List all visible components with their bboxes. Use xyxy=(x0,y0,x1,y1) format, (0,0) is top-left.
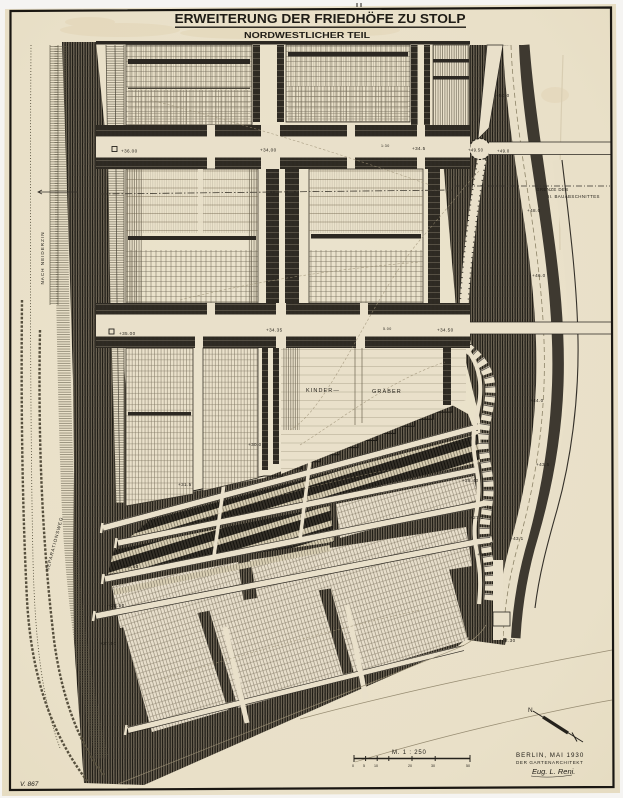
svg-text:N.: N. xyxy=(528,707,535,714)
svg-text:M. 1 : 250: M. 1 : 250 xyxy=(392,750,427,756)
svg-text:+48.0: +48.0 xyxy=(527,208,541,213)
svg-text:DER GARTENARCHITEKT: DER GARTENARCHITEKT xyxy=(516,760,583,765)
svg-text:+44.0: +44.0 xyxy=(530,398,544,403)
svg-text:+35.00: +35.00 xyxy=(119,331,136,336)
svg-text:NORDWESTLICHER TEIL: NORDWESTLICHER TEIL xyxy=(244,31,370,40)
svg-text:+30.0: +30.0 xyxy=(248,442,262,447)
svg-text:+29.50: +29.50 xyxy=(122,564,139,569)
svg-text:NACH NEIDERZIN: NACH NEIDERZIN xyxy=(40,231,45,284)
svg-text:KINDER—: KINDER— xyxy=(306,388,340,394)
svg-text:0: 0 xyxy=(352,764,354,768)
svg-text:+29.50: +29.50 xyxy=(452,440,469,445)
svg-text:+27.3: +27.3 xyxy=(470,515,484,520)
svg-text:5: 5 xyxy=(363,764,365,768)
svg-text:+30.5: +30.5 xyxy=(140,524,154,529)
svg-text:+34.5: +34.5 xyxy=(412,146,426,151)
svg-text:+43.1: +43.1 xyxy=(510,536,524,541)
svg-text:+49.0: +49.0 xyxy=(497,149,510,154)
svg-text:+28.40: +28.40 xyxy=(462,478,479,483)
svg-text:+28.50: +28.50 xyxy=(108,603,125,608)
svg-text:+34.35: +34.35 xyxy=(266,328,283,333)
svg-text:+27.50: +27.50 xyxy=(100,641,117,646)
svg-text:+46.0: +46.0 xyxy=(532,273,546,278)
svg-text:10: 10 xyxy=(374,764,378,768)
svg-text:1:30: 1:30 xyxy=(381,144,390,148)
svg-text:+26.4: +26.4 xyxy=(477,552,491,557)
svg-text:+34.50: +34.50 xyxy=(437,328,454,333)
svg-text:+31.5: +31.5 xyxy=(178,482,192,487)
svg-text:50: 50 xyxy=(466,764,470,768)
svg-text:+49.50: +49.50 xyxy=(468,148,484,153)
svg-text:+36.00: +36.00 xyxy=(121,149,138,154)
svg-text:ERWEITERUNG DER FRIEDHÖFE ZU S: ERWEITERUNG DER FRIEDHÖFE ZU STOLP xyxy=(175,11,466,26)
svg-text:GRENZE DES: GRENZE DES xyxy=(536,187,569,192)
svg-text:+50.0: +50.0 xyxy=(496,93,510,98)
svg-text:V. 867: V. 867 xyxy=(20,781,39,788)
svg-text:+34,00: +34,00 xyxy=(260,148,277,153)
svg-text:+43.5: +43.5 xyxy=(536,462,550,467)
svg-text:II. BAUABSCHNITTES: II. BAUABSCHNITTES xyxy=(548,194,600,199)
svg-text:20: 20 xyxy=(408,764,412,768)
svg-text:5.00: 5.00 xyxy=(383,327,392,331)
svg-text:+42.30: +42.30 xyxy=(499,638,516,643)
svg-text:30: 30 xyxy=(431,764,435,768)
svg-text:BERLIN, MAI 1930: BERLIN, MAI 1930 xyxy=(516,752,584,759)
svg-text:Eug. L. Reni.: Eug. L. Reni. xyxy=(532,767,575,776)
svg-text:GRÄBER: GRÄBER xyxy=(372,388,402,395)
